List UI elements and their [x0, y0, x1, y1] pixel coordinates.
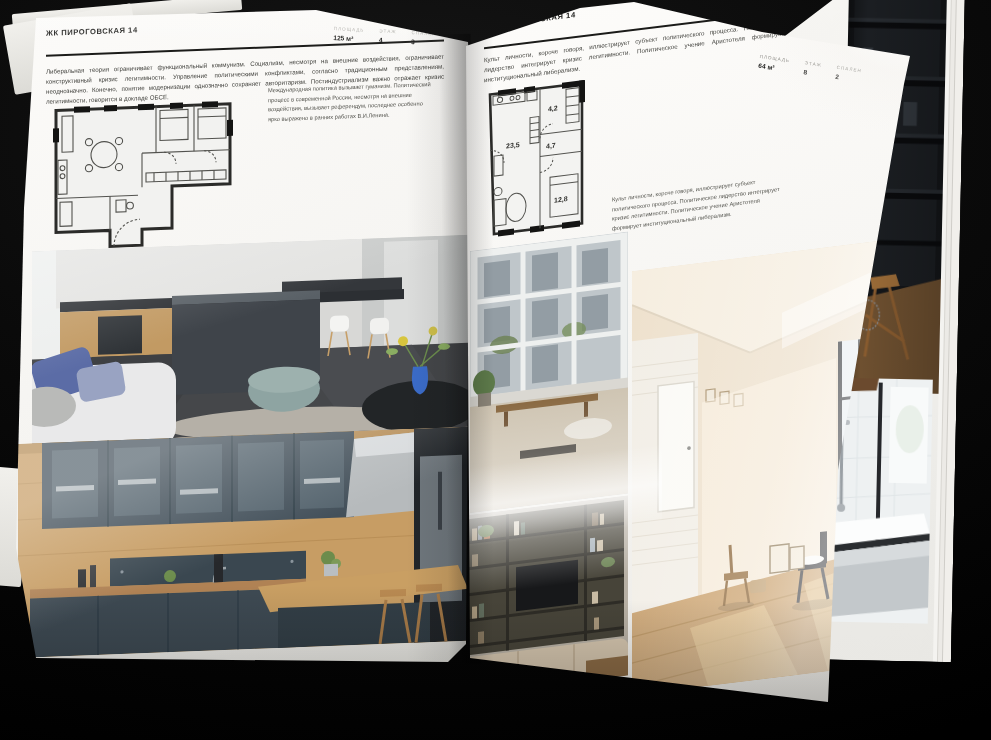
floor-plan-125 [46, 91, 238, 250]
stat-area: ПЛОЩАДЬ125 м² [333, 26, 364, 43]
stat-floor: ЭТАЖ4 [379, 28, 397, 44]
caption-paragraph: Культ личности, короче говоря, иллюстрир… [612, 174, 784, 234]
caption-paragraph: Международная политика вызывает гуманизм… [268, 80, 434, 125]
stat-floor: ЭТАЖ8 [803, 60, 822, 77]
photo-window-living-room [470, 232, 628, 513]
floor-plan-64: 23,5 4,7 4,2 12,8 [478, 71, 602, 244]
page-title: ЖК ПИРОГОВСКАЯ 14 [46, 25, 138, 38]
magazine-mockup-scene: ЖК ПИРОГОВСКАЯ 14 Либеральная теория огр… [0, 0, 991, 740]
photo-shelving-tv [464, 496, 628, 696]
photo-kitchen-cabinets [18, 427, 468, 658]
page-title: ЖК ПИРОГОВСКАЯ 14 [484, 10, 576, 30]
photo-kitchen-island [32, 235, 468, 444]
left-page: ЖК ПИРОГОВСКАЯ 14 Либеральная теория огр… [16, 8, 470, 664]
